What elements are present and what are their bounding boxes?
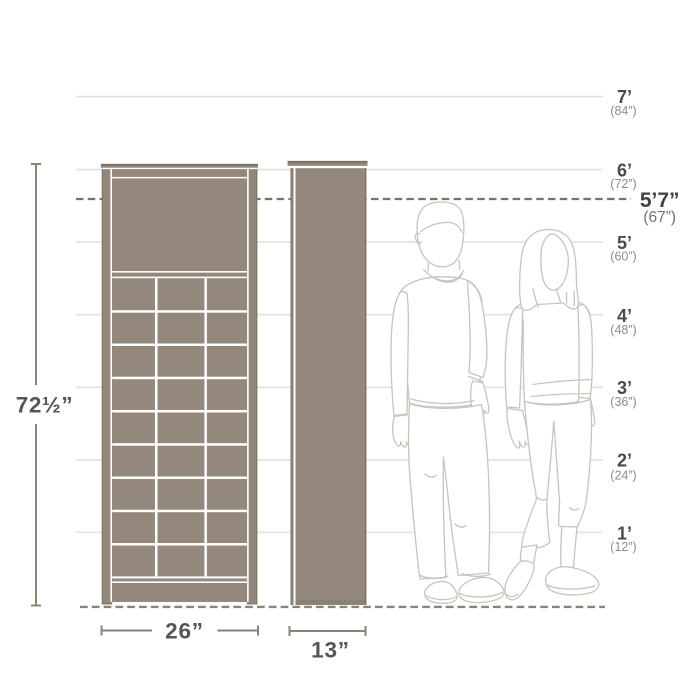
svg-text:26”: 26” [165,619,204,644]
svg-text:13”: 13” [311,638,350,663]
svg-text:(12”): (12”) [610,540,636,554]
svg-text:(84”): (84”) [610,104,636,118]
svg-text:(60”): (60”) [610,250,636,264]
svg-text:(24”): (24”) [610,468,636,482]
svg-text:(36”): (36”) [610,395,636,409]
svg-text:(67”): (67”) [643,209,676,226]
svg-text:72½”: 72½” [16,393,73,418]
svg-text:(72”): (72”) [610,177,636,191]
svg-text:(48”): (48”) [610,323,636,337]
